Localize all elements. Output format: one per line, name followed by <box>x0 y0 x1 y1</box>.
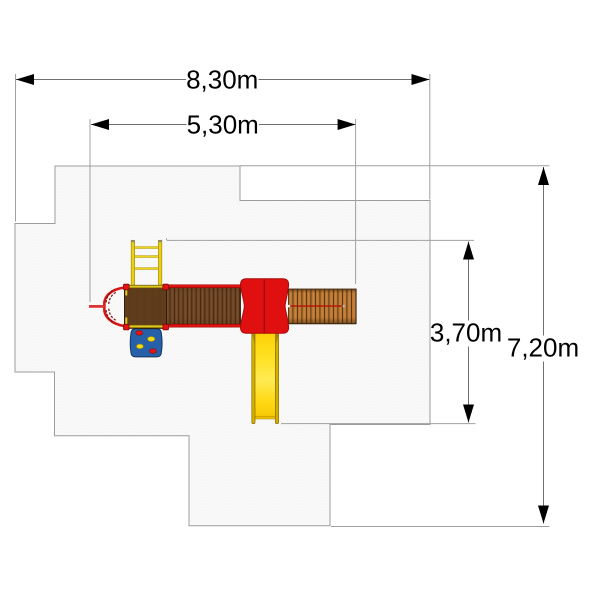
svg-text:8,30m: 8,30m <box>186 65 258 95</box>
svg-text:5,30m: 5,30m <box>187 110 259 140</box>
svg-text:3,70m: 3,70m <box>430 317 502 347</box>
svg-text:7,20m: 7,20m <box>507 332 579 362</box>
